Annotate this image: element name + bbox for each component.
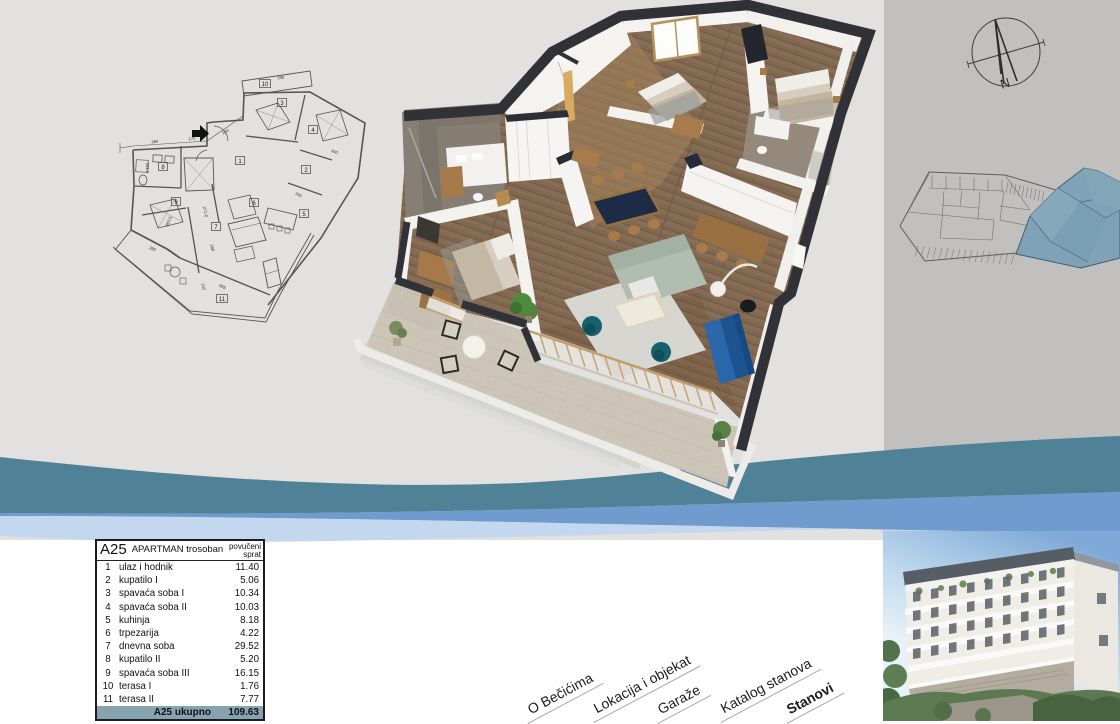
svg-text:281.5: 281.5 [145,163,150,174]
svg-text:390: 390 [277,74,285,80]
svg-text:340: 340 [330,148,339,155]
svg-text:4: 4 [311,128,315,134]
svg-text:7: 7 [214,225,218,231]
svg-text:132: 132 [200,283,206,292]
svg-text:10: 10 [262,82,269,88]
svg-text:271.8: 271.8 [202,206,209,218]
svg-text:260: 260 [151,139,159,145]
svg-text:5: 5 [302,212,306,218]
svg-text:348: 348 [209,244,215,253]
svg-text:6: 6 [252,201,256,207]
svg-text:170: 170 [188,136,196,142]
svg-text:N: N [999,75,1012,92]
svg-text:2: 2 [304,168,308,174]
svg-text:1: 1 [238,159,242,165]
svg-text:280: 280 [148,245,157,253]
svg-text:363.5: 363.5 [164,215,173,227]
svg-text:11: 11 [219,297,226,303]
svg-text:3: 3 [280,101,284,107]
svg-text:665: 665 [218,283,227,291]
svg-text:8: 8 [161,165,165,171]
svg-text:340: 340 [294,191,303,199]
svg-text:9: 9 [174,200,178,206]
svg-text:190: 190 [221,127,230,135]
